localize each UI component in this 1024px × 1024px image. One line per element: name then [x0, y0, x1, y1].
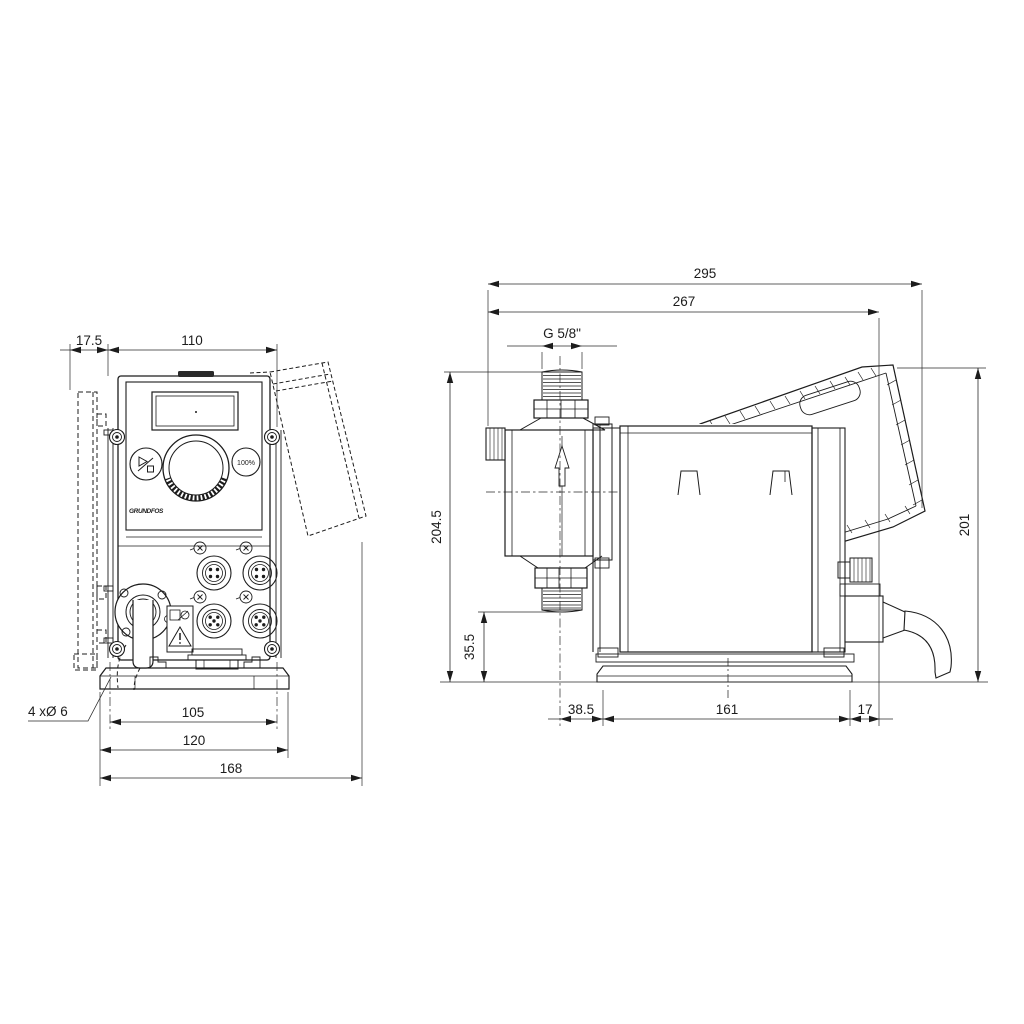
top-clip: [178, 371, 214, 377]
technical-drawing-page: 100% GRUNDFOS: [0, 0, 1024, 1024]
dim-base-length: 161: [716, 702, 739, 717]
dim-overall-depth: 295: [694, 266, 717, 281]
dim-connection-height: 35.5: [462, 634, 477, 660]
power-cable: [904, 611, 951, 678]
dim-front-offset: 38.5: [568, 702, 594, 717]
full-capacity-label: 100%: [237, 460, 255, 467]
cable-gland: [838, 558, 951, 678]
dim-overall-width: 168: [220, 761, 243, 776]
head-body: [505, 430, 593, 556]
dim-rear-height: 201: [957, 514, 972, 537]
front-view: 100% GRUNDFOS: [74, 362, 366, 690]
bottom-fitting-nut: [535, 568, 587, 588]
mounting-bracket-dashed: [74, 392, 106, 670]
grundfos-logo: GRUNDFOS: [129, 508, 164, 515]
dim-bracket-offset: 17.5: [76, 333, 102, 348]
warning-label: [167, 606, 193, 652]
connector-socket: [197, 604, 231, 638]
screw-icon: [110, 642, 125, 657]
base-plate-front: [100, 668, 289, 689]
screw-icon: [110, 430, 125, 445]
dim-overall-height: 204.5: [429, 510, 444, 544]
side-view: [486, 365, 951, 700]
top-valve-thread: [542, 370, 582, 400]
dim-rear-offset: 17: [857, 702, 872, 717]
drive-housing: [593, 424, 854, 662]
mounting-holes-label: 4 xØ 6: [28, 704, 68, 719]
bottom-valve-thread: [542, 588, 582, 612]
dim-hole-spacing: 105: [182, 705, 205, 720]
base-plate-side: [597, 658, 852, 700]
connector-socket: [243, 604, 277, 638]
thread-size-label: G 5/8": [543, 326, 581, 341]
dim-body-width: 110: [181, 333, 203, 348]
screw-icon: [265, 430, 280, 445]
deaeration-knob: [486, 428, 505, 460]
dosing-pump-dimensional-drawing: 100% GRUNDFOS: [0, 0, 1024, 1024]
dim-base-width: 120: [183, 733, 206, 748]
dim-housing-depth: 267: [673, 294, 696, 309]
screw-icon: [265, 642, 280, 657]
top-fitting-nut: [534, 400, 588, 418]
